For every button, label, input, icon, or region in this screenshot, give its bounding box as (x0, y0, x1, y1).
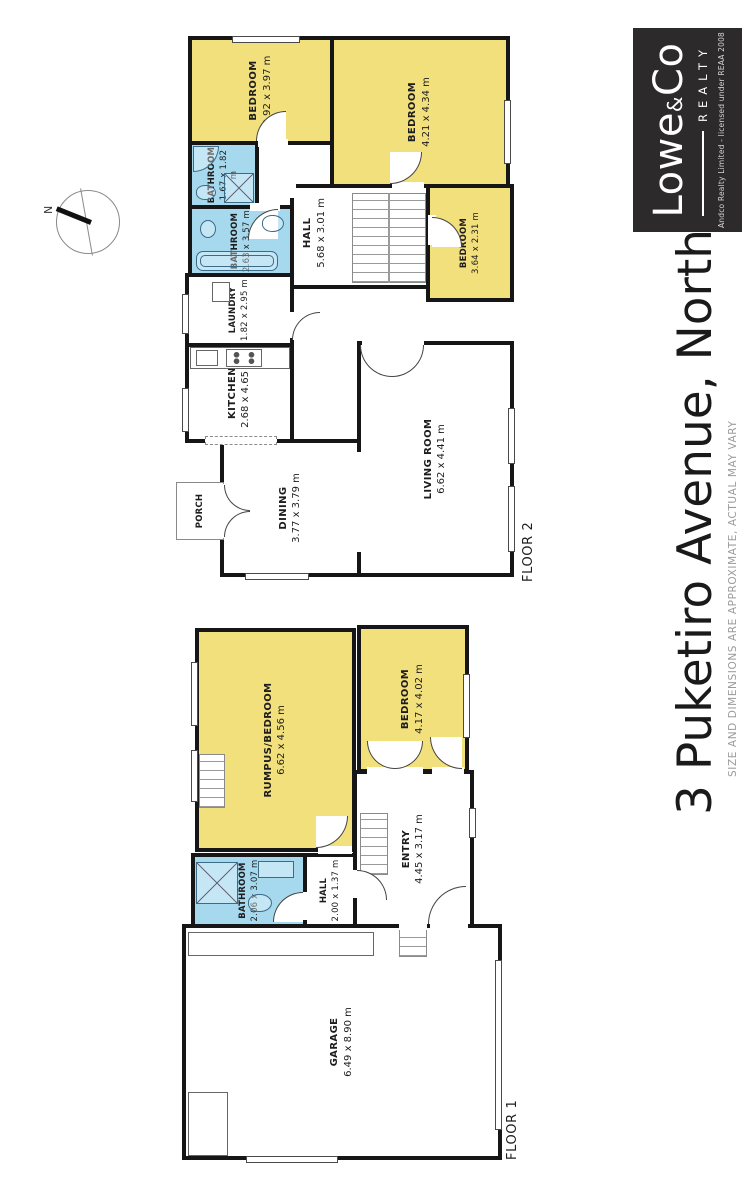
logo-ampersand: & (663, 96, 687, 112)
room-dims: 3.77 x 3.79 m (291, 473, 304, 543)
room-dims: 3.64 x 2.31 m (471, 212, 482, 274)
room-dims: 1.82 x 2.95 m (240, 279, 251, 341)
garage-bench (188, 932, 374, 956)
room-dims: 5.68 x 3.01 m (316, 198, 329, 268)
dimensions-disclaimer: SIZE AND DIMENSIONS ARE APPROXIMATE, ACT… (727, 420, 739, 777)
shower-fixture (196, 862, 238, 904)
window (182, 294, 189, 334)
toilet-fixture (248, 894, 272, 912)
window (191, 750, 198, 802)
logo-rule (702, 131, 704, 216)
room-name: HALL (319, 860, 330, 922)
shower-fixture (224, 173, 254, 203)
window (232, 36, 300, 43)
floor1-label: FLOOR 1 (505, 1100, 520, 1160)
room-name: GARAGE (329, 1007, 342, 1077)
room-garage: GARAGE6.49 x 8.90 m (182, 924, 502, 1160)
room-name: DINING (278, 473, 291, 543)
kitchen-sink-fixture (196, 350, 218, 366)
vanity-fixture (258, 861, 294, 878)
floorplan-page: DINING3.77 x 3.79 m LIVING ROOM6.62 x 4.… (0, 0, 750, 1200)
bathtub-fixture (196, 251, 278, 271)
room-bedroom-b-f2: BEDROOM4.21 x 4.34 m (330, 36, 510, 188)
window (508, 486, 515, 552)
window (463, 674, 470, 738)
passage-opening (355, 452, 363, 552)
room-name: ENTRY (401, 814, 414, 884)
logo-wordmark: Lowe&Co (649, 43, 689, 218)
staircase-garage (399, 928, 427, 957)
agency-logo: Lowe&Co REALTY Andco Realty Limited - li… (633, 28, 742, 232)
logo-realty-label: REALTY (696, 44, 710, 122)
floor2-label: FLOOR 2 (521, 522, 536, 582)
stove-fixture (226, 349, 262, 367)
window (508, 408, 515, 464)
door-opening (399, 922, 427, 930)
window (504, 100, 511, 164)
logo-lowe: Lowe (646, 112, 692, 217)
window (469, 808, 476, 838)
staircase-entry (360, 813, 388, 875)
room-name: HALL (302, 198, 315, 268)
logo-realty-row: REALTY (696, 44, 710, 216)
room-name: LIVING ROOM (423, 419, 436, 500)
room-dims: 6.62 x 4.41 m (436, 419, 449, 500)
laundry-sink-fixture (212, 282, 230, 302)
toilet-fixture (196, 185, 216, 200)
room-name: BATHROOM (238, 860, 249, 922)
room-living: LIVING ROOM6.62 x 4.41 m (357, 341, 514, 577)
room-name: PORCH (195, 494, 206, 528)
garage-door (495, 960, 502, 1130)
basin-fixture (200, 220, 216, 238)
passage-opening (286, 162, 296, 198)
room-dims: 6.62 x 4.56 m (276, 682, 289, 797)
north-compass: N (56, 190, 120, 254)
door-arc (292, 312, 320, 340)
room-hall-f1: HALL2.00 x 1.37 m (303, 853, 357, 928)
room-dims: 4.21 x 4.34 m (421, 77, 434, 147)
stair-rail-f2 (388, 193, 390, 283)
room-name: RUMPUS/BEDROOM (263, 682, 276, 797)
room-dims: 4.45 x 3.17 m (414, 814, 427, 884)
room-name: BEDROOM (407, 77, 420, 147)
room-name: BEDROOM (400, 664, 413, 734)
toilet-fixture (262, 215, 284, 232)
room-dims: 6.49 x 8.90 m (343, 1007, 356, 1077)
logo-license-text: Andco Realty Limited - licensed under RE… (717, 32, 726, 228)
garage-storage (188, 1092, 228, 1156)
room-dims: 2.00 x 1.37 m (331, 860, 342, 922)
room-dims: 4.17 x 4.02 m (414, 664, 427, 734)
window (182, 388, 189, 432)
room-laundry: LAUNDRY1.82 x 2.95 m (185, 273, 294, 347)
room-name: BEDROOM (248, 56, 261, 126)
window (191, 662, 198, 726)
logo-co: Co (646, 43, 692, 96)
window (246, 1156, 338, 1163)
kitchen-counter-opening (205, 436, 277, 445)
staircase-rumpus (199, 754, 225, 808)
window (245, 573, 309, 580)
north-label: N (42, 206, 55, 214)
room-porch: PORCH (176, 482, 224, 540)
rotated-plan-canvas: DINING3.77 x 3.79 m LIVING ROOM6.62 x 4.… (0, 0, 750, 1200)
